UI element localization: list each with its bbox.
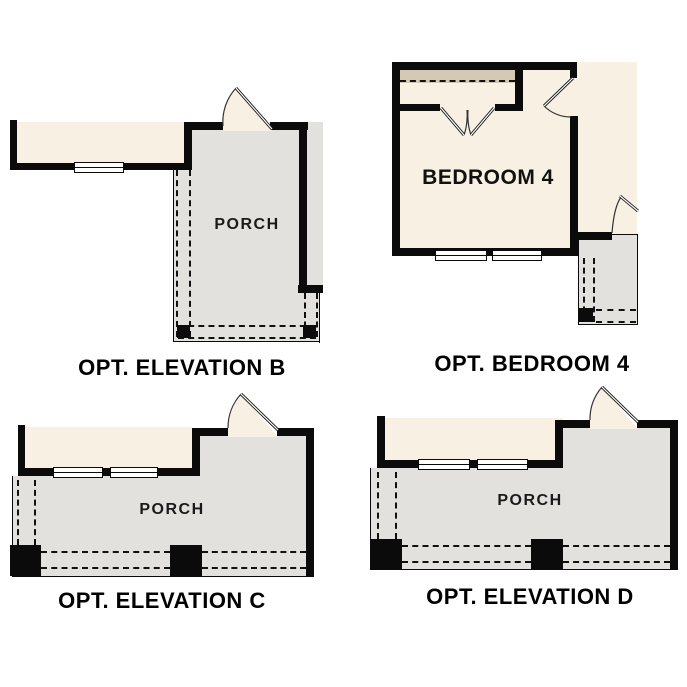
elevation-b-door-swing	[223, 88, 272, 131]
elevation-b-porch-slab	[173, 167, 320, 342]
roof-line-dashed	[176, 170, 178, 337]
elevation-d-caption: OPT. ELEVATION D	[396, 584, 664, 610]
bedroom4-room-label: BEDROOM 4	[408, 166, 568, 190]
window	[53, 467, 103, 478]
elevation-b-room-floor	[10, 122, 186, 164]
bedroom4-hall-floor	[578, 62, 637, 240]
wall	[18, 468, 192, 476]
roof-line-dashed	[596, 309, 636, 311]
elevation-b-slab-edge	[319, 293, 320, 343]
porch-post	[303, 325, 316, 338]
closet-rod-dashed	[400, 80, 515, 82]
porch-post	[10, 545, 41, 576]
wall	[495, 104, 523, 111]
elevation-c-porch-slab	[12, 476, 306, 577]
bedroom4-caption: OPT. BEDROOM 4	[398, 351, 666, 377]
roof-line-dashed	[377, 472, 379, 539]
roof-line-dashed	[34, 480, 36, 545]
elevation-d-door-swing	[590, 387, 638, 429]
elevation-c-porch-label: PORCH	[125, 501, 219, 519]
elevation-d-porch-floor	[563, 428, 672, 468]
bedroom4-floor	[392, 62, 578, 256]
wall	[377, 416, 385, 462]
wall	[570, 232, 612, 240]
roof-line-dashed	[402, 545, 531, 547]
wall	[570, 62, 577, 78]
roof-line-dashed	[563, 561, 670, 563]
roof-line-dashed	[316, 293, 318, 337]
roof-line-dashed	[395, 472, 397, 539]
elevation-c-room-floor	[25, 427, 192, 468]
elevation-b-caption: OPT. ELEVATION B	[37, 355, 327, 381]
roof-line-dashed	[178, 337, 316, 339]
roof-line-dashed	[17, 480, 19, 545]
window	[492, 250, 542, 261]
roof-line-dashed	[41, 567, 170, 569]
elevation-c-caption: OPT. ELEVATION C	[28, 588, 296, 614]
wall	[392, 62, 577, 70]
wall	[18, 425, 25, 470]
elevation-d-porch-label: PORCH	[483, 492, 577, 510]
wall	[392, 62, 400, 256]
elevation-d-porch-slab	[370, 468, 672, 570]
elevation-b-roof-overhang	[307, 122, 323, 285]
wall	[400, 104, 440, 111]
elevation-c-door-swing	[228, 394, 278, 437]
wall	[670, 420, 678, 570]
bedroom4-porch-edge	[612, 234, 638, 235]
elevation-b-porch-floor	[184, 130, 307, 168]
porch-post	[531, 539, 563, 570]
roof-line-dashed	[41, 551, 170, 553]
wall	[192, 428, 228, 436]
porch-post	[579, 308, 593, 322]
roof-line-dashed	[189, 170, 191, 337]
elevation-b-porch-label: PORCH	[200, 216, 294, 234]
wall	[306, 428, 314, 577]
window	[477, 459, 528, 470]
roof-line-dashed	[402, 561, 531, 563]
window	[74, 162, 124, 173]
elevation-c-porch-floor	[200, 436, 306, 477]
window	[418, 459, 470, 470]
porch-post	[177, 325, 190, 338]
roof-line-dashed	[593, 258, 595, 322]
elevation-d-room-floor	[385, 418, 563, 460]
roof-line-dashed	[178, 325, 316, 327]
window	[110, 467, 158, 478]
window	[435, 250, 487, 261]
roof-line-dashed	[596, 321, 636, 323]
roof-line-dashed	[202, 567, 306, 569]
porch-post	[370, 539, 402, 570]
roof-line-dashed	[202, 551, 306, 553]
porch-post	[170, 545, 202, 576]
wall	[377, 460, 563, 468]
wall	[299, 122, 307, 285]
wall	[555, 420, 590, 428]
roof-line-dashed	[563, 545, 670, 547]
floorplan-sheet: BEDROOM 4 PORCH PORCH PORCH OPT. ELEVATI…	[0, 0, 687, 687]
wall	[298, 285, 323, 293]
wall	[184, 122, 227, 130]
